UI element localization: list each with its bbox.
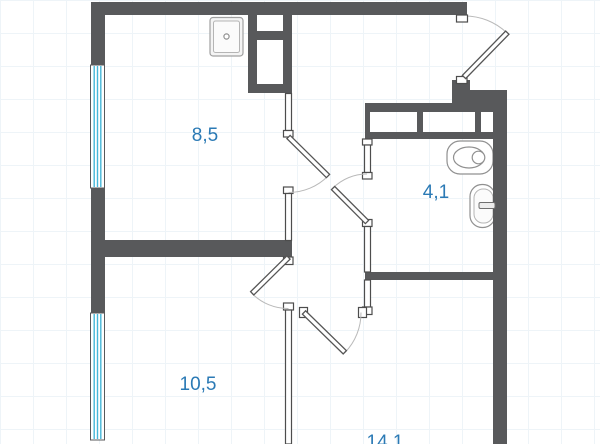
washbasin-faucet-icon — [479, 203, 495, 209]
toilet-icon — [447, 141, 493, 174]
bathroom-door — [331, 174, 368, 224]
window-room-lower-left — [91, 313, 105, 440]
kitchen-sink-icon — [210, 18, 243, 57]
kitchen-door — [287, 135, 330, 192]
room-labels: 8,5 4,1 10,5 14,1 — [180, 125, 450, 444]
entry-door — [457, 15, 509, 84]
room-lower-right-area-label: 14,1 — [367, 432, 404, 444]
room-lower-left-area-label: 10,5 — [180, 374, 217, 395]
outer-walls — [91, 2, 507, 444]
bathroom-area-label: 4,1 — [423, 182, 449, 203]
kitchen-area-label: 8,5 — [192, 125, 218, 146]
room-lower-left-door — [251, 256, 293, 309]
floor-plan: 8,5 4,1 10,5 14,1 — [0, 0, 600, 444]
closet-cells — [365, 103, 493, 139]
room-lower-right-door — [302, 311, 361, 354]
vent-shaft — [248, 15, 292, 93]
floor-plan-canvas: 8,5 4,1 10,5 14,1 — [0, 0, 600, 444]
window-kitchen — [91, 65, 105, 188]
